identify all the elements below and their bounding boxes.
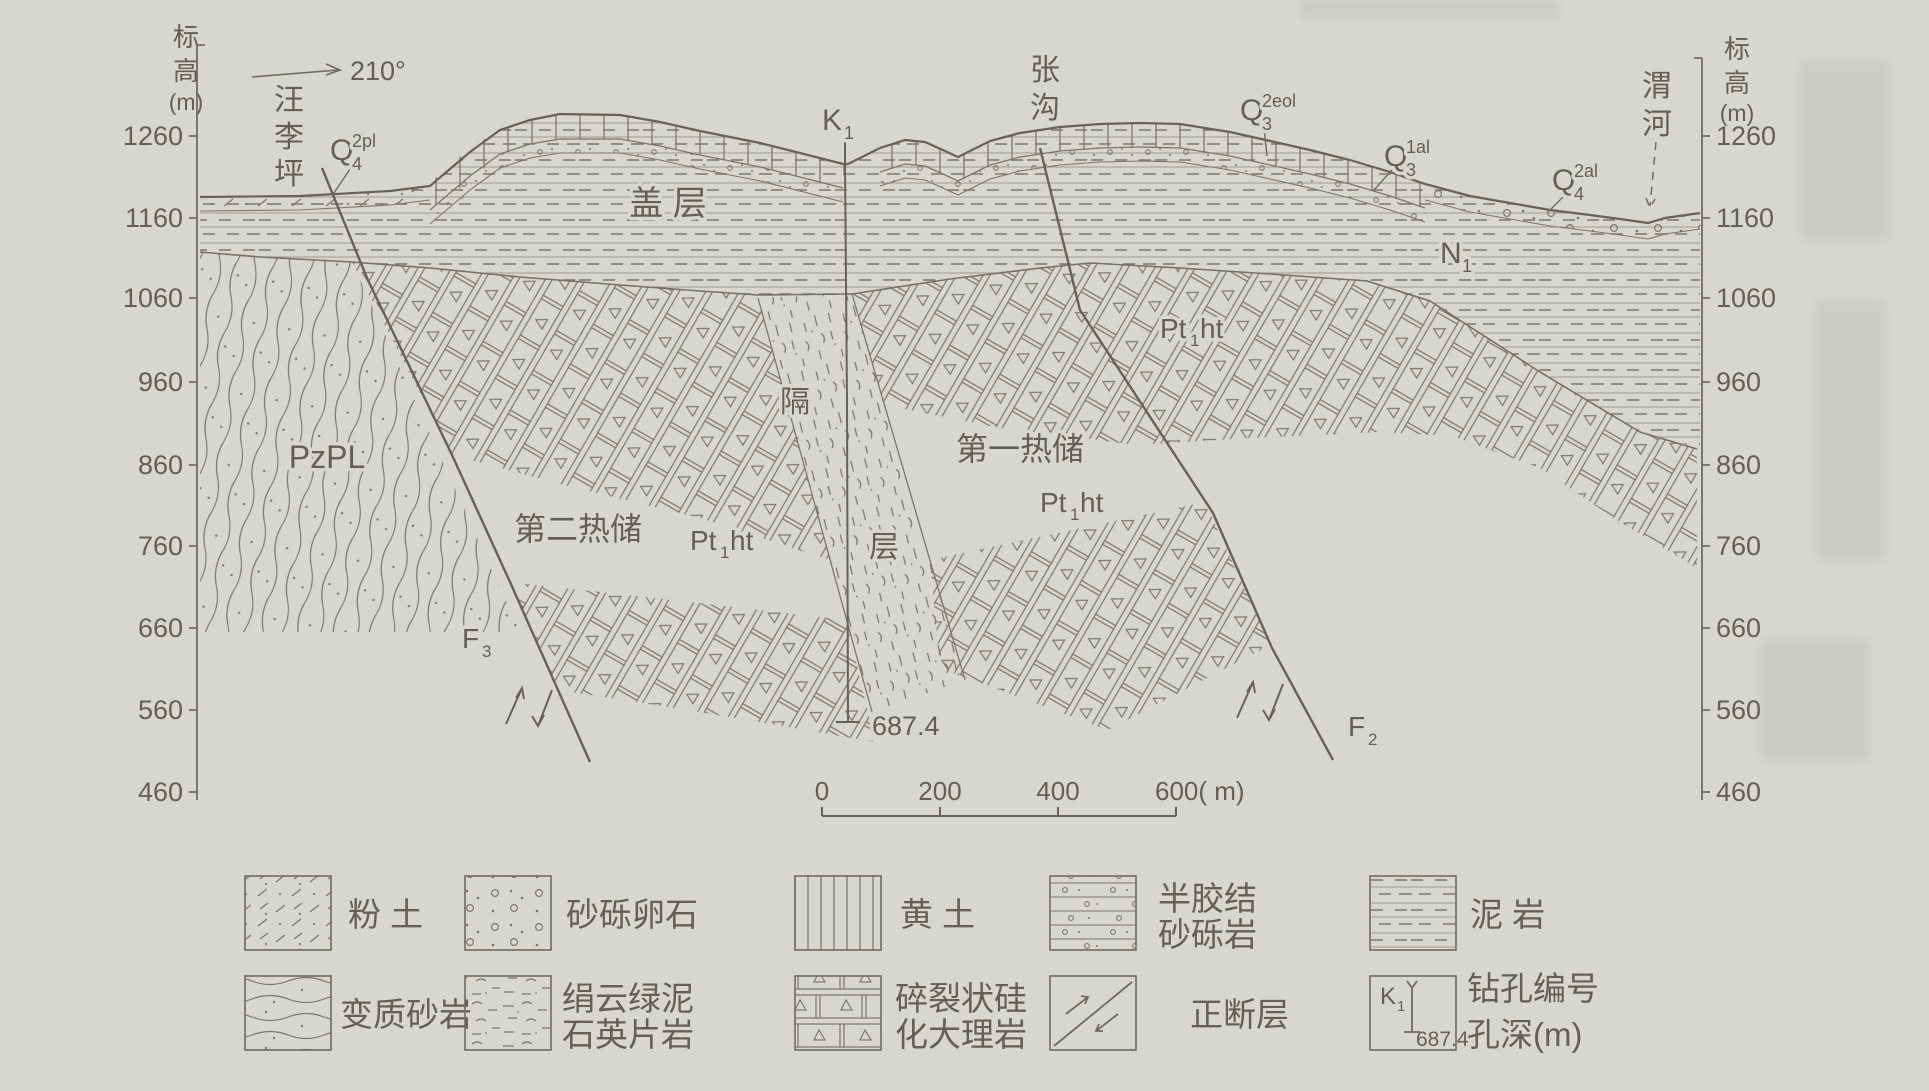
- normal-fault-symbol: [1054, 982, 1132, 1046]
- pt1ht-base: Pt: [1160, 313, 1187, 344]
- section-svg: 标 高 (m) 1260 1160 1060 960 860 760 660 5…: [0, 0, 1929, 1091]
- place-wanglilping-char: 坪: [274, 158, 304, 191]
- place-wanglilping-char: 汪: [274, 84, 304, 117]
- axis-tick-label: 1060: [1716, 283, 1776, 313]
- legend-label-metasandstone: 变质砂岩: [340, 996, 472, 1033]
- axis-title-char: 标: [173, 22, 199, 52]
- legend-label-semicemented-2: 砂砾岩: [1158, 916, 1257, 953]
- marble-block-lower-left: [510, 582, 875, 742]
- legend-swatch-gravel: [465, 876, 551, 950]
- isolation-char2: 层: [869, 531, 899, 564]
- reservoir2-label: 第二热储: [514, 511, 642, 547]
- scale-tick-0: 0: [815, 776, 829, 806]
- pt1ht-sub: 1: [1190, 331, 1199, 350]
- legend-borehole-depth: 687.4: [1416, 1028, 1469, 1051]
- legend-swatch-mudstone: [1370, 876, 1456, 950]
- pt1ht-tail: ht: [1080, 487, 1104, 518]
- axis-tick-label: 560: [138, 695, 183, 725]
- left-elevation-axis: 标 高 (m) 1260 1160 1060 960 860 760 660 5…: [123, 22, 205, 807]
- legend-swatch-silt: [245, 876, 331, 950]
- legend-label-borehole-1: 钻孔编号: [1467, 970, 1599, 1007]
- axis-tick-label: 960: [1716, 367, 1761, 397]
- axis-tick-label: 860: [138, 450, 183, 480]
- pt1ht-base: Pt: [690, 525, 717, 556]
- place-weihe-char: 河: [1642, 108, 1672, 141]
- unit-q3-2eol-sup: 2eol: [1262, 91, 1296, 111]
- place-zhanggou-char: 沟: [1030, 92, 1060, 125]
- unit-q3-1al-sub: 3: [1406, 160, 1416, 180]
- axis-tick-label: 460: [138, 777, 183, 807]
- axis-tick-label: 760: [138, 531, 183, 561]
- borehole-k1-sub: 1: [844, 123, 854, 143]
- pt1ht-sub: 1: [1070, 505, 1079, 524]
- scale-bar: 0 200 400 600( m): [815, 776, 1245, 816]
- unit-q3-1al-base: Q: [1384, 140, 1407, 173]
- legend-label-schist-1: 绢云绿泥: [562, 980, 694, 1017]
- borehole-k1-base: K: [822, 104, 842, 137]
- legend-borehole-id-sub: 1: [1397, 998, 1405, 1015]
- unit-q3-2eol-base: Q: [1240, 94, 1263, 127]
- cross-section-drawing: 210°: [200, 56, 1700, 762]
- scale-bar-line: [822, 807, 1176, 816]
- unit-q3-1al-sup: 1al: [1406, 137, 1430, 157]
- borehole-depth-label: 687.4: [872, 711, 940, 741]
- unit-q3-2eol-sub: 3: [1262, 114, 1272, 134]
- axis-title-char: 高: [173, 56, 199, 86]
- legend-label-marble-1: 碎裂状硅: [895, 980, 1027, 1017]
- pt1ht-tail: ht: [730, 525, 754, 556]
- weihe-leader-dashed: [1646, 142, 1656, 208]
- marble-block-lower-middle: [930, 502, 1270, 730]
- axis-tick-label: 660: [1716, 613, 1761, 643]
- place-wanglilping-char: 李: [274, 121, 304, 154]
- legend-label-loess: 黄 土: [900, 896, 975, 933]
- unit-q4-2al-sup: 2al: [1574, 161, 1598, 181]
- f3-sub: 3: [482, 642, 491, 661]
- legend-label-gravel: 砂砾卵石: [566, 896, 698, 933]
- legend-label-mudstone: 泥 岩: [1470, 896, 1545, 933]
- bleed-artifact: [1300, 0, 1560, 18]
- legend-swatch-semicemented: [1050, 876, 1136, 950]
- pt1ht-sub: 1: [720, 543, 729, 562]
- unit-q4-2pl-base: Q: [330, 134, 353, 167]
- place-zhanggou-char: 张: [1030, 54, 1060, 87]
- bleed-artifact: [1760, 640, 1870, 760]
- scale-tick-400: 400: [1036, 776, 1079, 806]
- legend-label-silt: 粉 土: [348, 896, 423, 933]
- unit-q4-2al-sub: 4: [1574, 184, 1584, 204]
- axis-tick-label: 1060: [123, 283, 183, 313]
- axis-tick-label: 560: [1716, 695, 1761, 725]
- axis-tick-label: 660: [138, 613, 183, 643]
- f3-base: F: [462, 623, 479, 654]
- legend-swatch-loess: [795, 876, 881, 950]
- unit-pt1ht-label-left: Pt 1 ht: [690, 525, 754, 562]
- axis-tick-label: 1160: [125, 203, 183, 233]
- fault-f2-movement-arrows: [1237, 682, 1283, 720]
- axis-tick-label: 860: [1716, 450, 1761, 480]
- unit-pzpl-label: PzPL: [289, 439, 365, 475]
- geological-cross-section-page: 标 高 (m) 1260 1160 1060 960 860 760 660 5…: [0, 0, 1929, 1091]
- axis-tick-label: 1260: [123, 121, 183, 151]
- unit-n1-sub: 1: [1462, 256, 1472, 276]
- legend-label-semicemented-1: 半胶结: [1158, 880, 1257, 917]
- f2-base: F: [1348, 711, 1365, 742]
- axis-tick-label: 760: [1716, 531, 1761, 561]
- legend-swatch-marble: [795, 976, 881, 1050]
- scale-tick-200: 200: [918, 776, 961, 806]
- unit-q4-2pl-sub: 4: [352, 154, 362, 174]
- unit-q4-2al-base: Q: [1552, 164, 1575, 197]
- cover-layer-label: 盖 层: [629, 185, 706, 223]
- axis-title-char: (m): [169, 89, 203, 115]
- axis-title-char: 高: [1724, 68, 1750, 98]
- legend-swatch-schist: [465, 976, 551, 1050]
- direction-arrow: [252, 64, 340, 77]
- unit-pt1ht-label-middle: Pt 1 ht: [1040, 487, 1104, 524]
- f2-sub: 2: [1368, 730, 1377, 749]
- axis-tick-label: 1160: [1716, 203, 1774, 233]
- bleed-artifact: [1800, 60, 1890, 240]
- legend-borehole-id-base: K: [1380, 983, 1396, 1010]
- legend: 粉 土 砂砾卵石 黄 土 半胶结 砂砾岩 泥 岩 变质砂岩 绢云绿泥 石英片岩 …: [245, 876, 1599, 1053]
- scale-tick-600: 600( m): [1155, 776, 1245, 806]
- unit-q4-2pl-sup: 2pl: [352, 131, 376, 151]
- direction-label: 210°: [350, 56, 406, 86]
- axis-title-char: 标: [1724, 34, 1750, 64]
- pt1ht-base: Pt: [1040, 487, 1067, 518]
- legend-label-borehole-2: 孔深(m): [1467, 1016, 1582, 1053]
- axis-tick-label: 960: [138, 367, 183, 397]
- fault-f3-movement-arrows: [506, 688, 552, 726]
- axis-tick-label: 460: [1716, 777, 1761, 807]
- legend-label-normal-fault: 正断层: [1190, 996, 1289, 1033]
- legend-label-schist-2: 石英片岩: [562, 1016, 694, 1053]
- pt1ht-tail: ht: [1200, 313, 1224, 344]
- reservoir1-label: 第一热储: [956, 431, 1084, 467]
- fault-f2-label: F 2: [1348, 711, 1377, 749]
- isolation-char1: 隔: [780, 386, 810, 419]
- legend-swatch-metasandstone: [245, 976, 331, 1050]
- axis-tick-label: 1260: [1716, 121, 1776, 151]
- place-weihe-char: 渭: [1642, 70, 1672, 103]
- unit-n1-base: N: [1440, 237, 1462, 270]
- bleed-artifact: [1815, 300, 1885, 560]
- legend-label-marble-2: 化大理岩: [895, 1016, 1027, 1053]
